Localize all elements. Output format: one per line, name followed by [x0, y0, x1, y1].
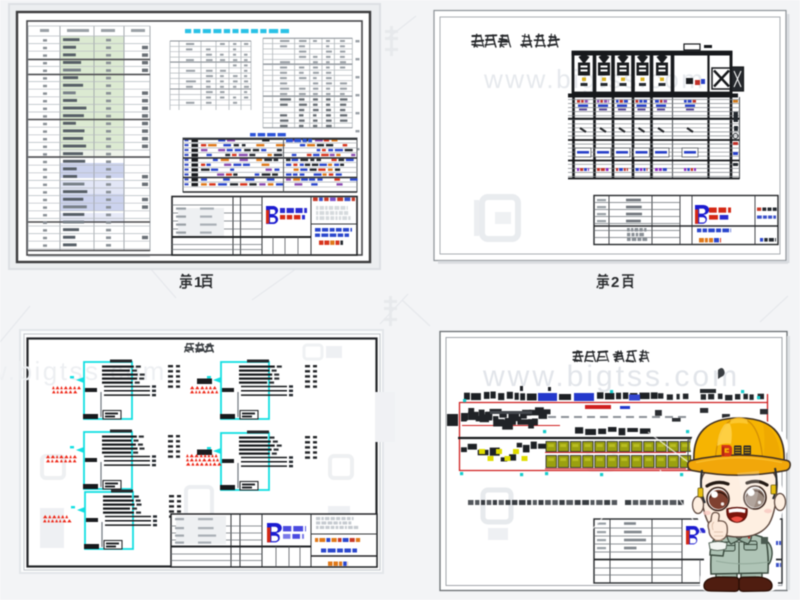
- svg-text:2: 2: [611, 274, 619, 291]
- svg-text:1: 1: [194, 274, 202, 291]
